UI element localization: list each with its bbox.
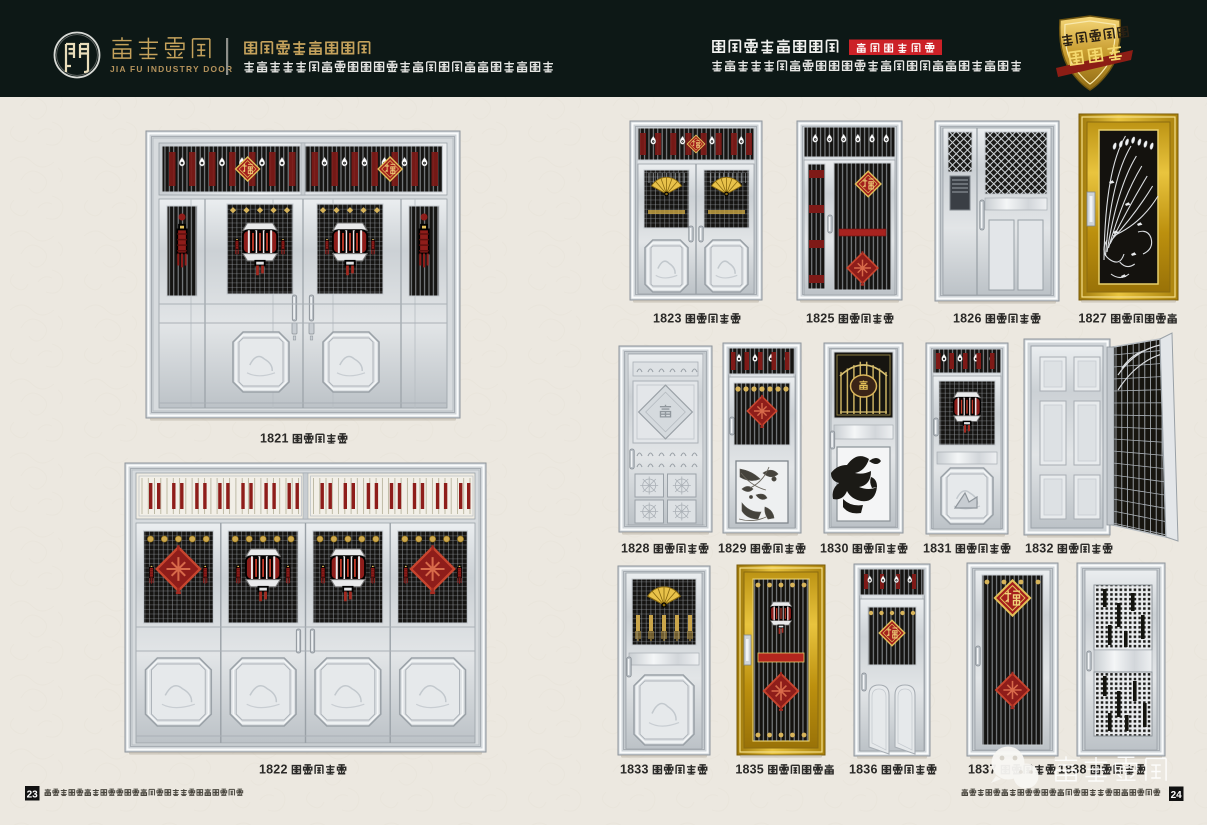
svg-text:1823: 1823 <box>653 312 682 326</box>
svg-text:1822: 1822 <box>259 763 288 777</box>
svg-text:1836: 1836 <box>849 763 878 777</box>
svg-text:JIA FU INDUSTRY DOOR: JIA FU INDUSTRY DOOR <box>110 64 233 74</box>
svg-text:23: 23 <box>27 790 39 801</box>
svg-text:1826: 1826 <box>953 312 982 326</box>
svg-text:1829: 1829 <box>718 542 747 556</box>
svg-text:1835: 1835 <box>735 763 764 777</box>
svg-text:1833: 1833 <box>620 763 649 777</box>
svg-text:1821: 1821 <box>260 432 289 446</box>
svg-text:1828: 1828 <box>621 542 650 556</box>
svg-text:24: 24 <box>1171 790 1183 801</box>
svg-text:1827: 1827 <box>1078 312 1107 326</box>
svg-text:1830: 1830 <box>820 542 849 556</box>
svg-text:1832: 1832 <box>1025 542 1054 556</box>
svg-text:1825: 1825 <box>806 312 835 326</box>
svg-text:1831: 1831 <box>923 542 952 556</box>
